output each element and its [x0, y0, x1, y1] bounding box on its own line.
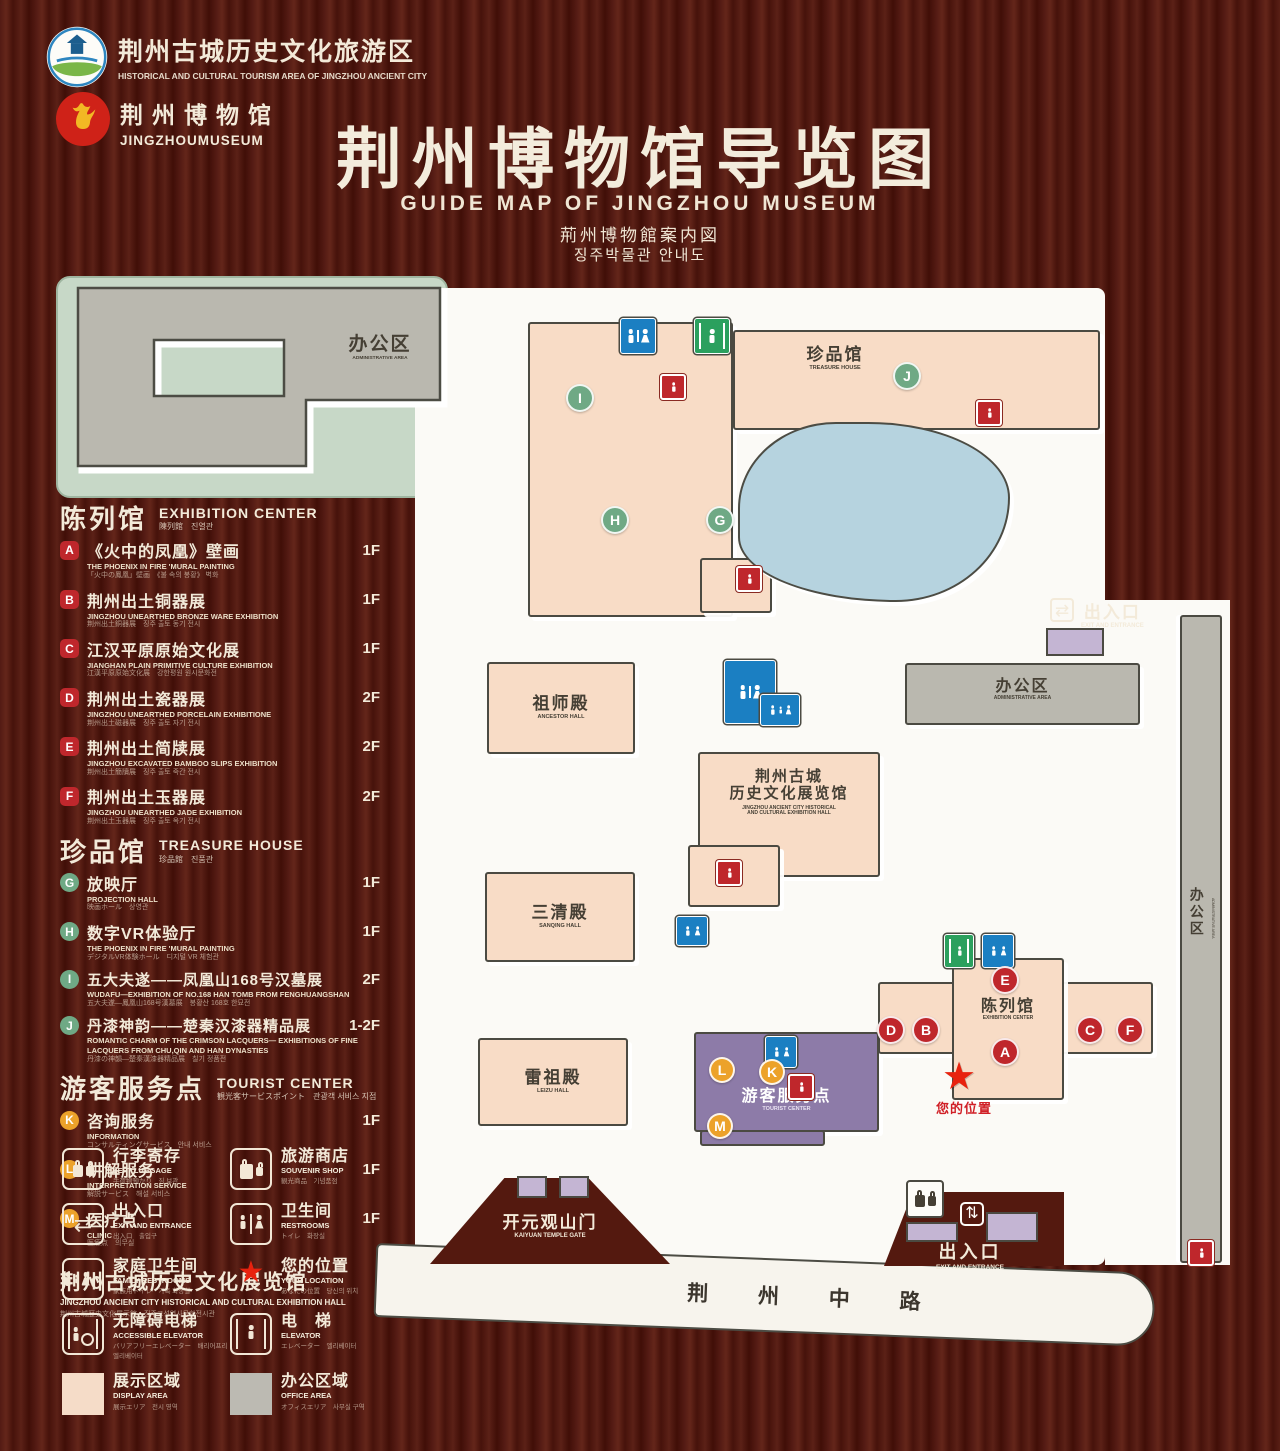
legend-item-k: K 咨询服务1F INFORMATIONコンサルティングサービス 안내 서비스	[60, 1108, 380, 1150]
exit-entrance-icon: ⇄	[1050, 598, 1074, 622]
legend-section-exhibition-header: 陈列馆 EXHIBITION CENTER 陳列館 진열관	[60, 506, 380, 532]
page-subtitle-ko: 징주박물관 안내도	[290, 244, 990, 265]
exhibition-center-label: 陈列馆 EXHIBITION CENTER	[952, 998, 1064, 1022]
north-gate-structure	[1046, 628, 1104, 656]
marker-g: G	[60, 873, 79, 892]
road-label: 荆 州 中 路	[687, 1277, 943, 1317]
facility-elevator: 电 梯 ELEVATOR エレベーター 엘리베이터	[230, 1313, 398, 1360]
marker-e: E	[60, 737, 79, 756]
marker-k: K	[60, 1111, 79, 1130]
facility-left-luggage: 行李寄存 LEFT LUGGAGE 手荷物預かり 짐 보관	[62, 1148, 230, 1190]
family-restroom-icon	[760, 694, 800, 726]
kaiyuan-gate-post	[559, 1176, 589, 1198]
sanqing-hall-label: 三清殿 SANQING HALL	[485, 903, 635, 929]
legend-item-c: C 江汉平原原始文化展1F JIANGHAN PLAIN PRIMITIVE C…	[60, 637, 380, 679]
marker-b: B	[60, 590, 79, 609]
facility-display-area: 展示区域 DISPLAY AREA 展示エリア 전시 영역	[62, 1373, 230, 1415]
exit-entrance-icon: ⇄	[62, 1203, 104, 1245]
map-marker-d: D	[877, 1016, 905, 1044]
north-entrance: ⇄ 出入口 EXIT AND ENTRANCE	[1050, 598, 1144, 629]
museum-guide-map-poster: 荆州古城历史文化旅游区 HISTORICAL AND CULTURAL TOUR…	[0, 0, 1280, 1451]
legend-section-tourist-header: 游客服务点 TOURIST CENTER 観光客サービスポイント 관광객 서비스…	[60, 1076, 380, 1102]
restroom-icon	[620, 318, 656, 354]
legend-item-e: E 荆州出土简牍展2F JINGZHOU EXCAVATED BAMBOO SL…	[60, 735, 380, 777]
facility-your-location: ★ 您的位置 YOUR LOCATION あなたの位置 당신의 위치	[230, 1258, 398, 1300]
facility-exit-entrance: ⇄ 出入口 EXIT AND ENTRANCE 出入口 출입구	[62, 1203, 230, 1245]
map-marker-h: H	[601, 506, 629, 534]
museum-logo	[56, 92, 110, 146]
kaiyuan-gate-post	[517, 1176, 547, 1198]
accessible-elevator-icon	[788, 1074, 814, 1100]
page-title: 荆州博物馆导览图	[290, 106, 990, 202]
accessible-elevator-icon	[660, 374, 686, 400]
map-marker-c: C	[1076, 1016, 1104, 1044]
legend-item-f: F 荆州出土玉器展2F JINGZHOU UNEARTHED JADE EXHI…	[60, 784, 380, 826]
marker-a: A	[60, 541, 79, 560]
facility-souvenir-shop: 旅游商店 SOUVENIR SHOP 観光商品 기념품점	[230, 1148, 398, 1190]
accessible-elevator-icon	[1188, 1240, 1214, 1266]
map-marker-b: B	[912, 1016, 940, 1044]
display-area-swatch	[62, 1373, 104, 1415]
souvenir-shop-icon	[230, 1148, 272, 1190]
ancestor-hall-label: 祖师殿 ANCESTOR HALL	[487, 694, 635, 720]
map-marker-j: J	[893, 362, 921, 390]
facility-legend: 行李寄存 LEFT LUGGAGE 手荷物預かり 짐 보관 旅游商店 SOUVE…	[62, 1148, 398, 1415]
marker-i: I	[60, 970, 79, 989]
admin-strip-east: 办公区 ADMINISTRATIVE AREA	[1180, 615, 1222, 1263]
your-location-star-icon: ★	[230, 1258, 272, 1288]
admin-strip-label-en: ADMINISTRATIVE AREA	[1211, 898, 1215, 938]
page-subtitle-ja: 荊州博物館案内図	[290, 221, 990, 246]
restroom-icon	[982, 934, 1014, 968]
north-entrance-label-en: EXIT AND ENTRANCE	[1081, 623, 1144, 629]
accessible-elevator-icon	[736, 566, 762, 592]
legend-item-d: D 荆州出土瓷器展2F JINGZHOU UNEARTHED PORCELAIN…	[60, 686, 380, 728]
facility-office-area: 办公区域 OFFICE AREA オフィスエリア 사무실 구역	[230, 1373, 398, 1415]
map-marker-e: E	[991, 966, 1019, 994]
museum-logo-title: 荆州博物馆	[120, 96, 280, 130]
accessible-elevator-icon	[62, 1313, 104, 1355]
tourist-center-label: 游客服务点 TOURIST CENTER	[694, 1088, 879, 1113]
tourism-area-subtitle: HISTORICAL AND CULTURAL TOURISM AREA OF …	[118, 71, 427, 81]
facility-accessible-elevator: 无障碍电梯 ACCESSIBLE ELEVATOR バリアフリーエレベーター 배…	[62, 1313, 230, 1360]
exit-entrance-icon: ⇅	[960, 1202, 984, 1226]
admin-right-label: 办公区 ADMINISTRATIVE AREA	[905, 678, 1140, 702]
marker-j: J	[60, 1016, 79, 1035]
map-marker-g: G	[706, 506, 734, 534]
accessible-elevator-icon	[716, 860, 742, 886]
ancient-city-exhibition-hall-label: 荆州古城 历史文化展览馆 JINGZHOU ANCIENT CITY HISTO…	[698, 768, 880, 817]
tourism-area-title: 荆州古城历史文化旅游区	[118, 32, 427, 68]
legend-item-a: A 《火中的凤凰》壁画1F THE PHOENIX IN FIRE 'MURAL…	[60, 538, 380, 580]
facility-family-restrooms: 家庭卫生间 FAMILY RESTROOMS 家族用トイレ 가족 화장실	[62, 1258, 230, 1300]
marker-c: C	[60, 639, 79, 658]
marker-f: F	[60, 787, 79, 806]
elevator-icon	[944, 934, 974, 968]
marker-d: D	[60, 688, 79, 707]
legend-section-treasure-header: 珍品馆 TREASURE HOUSE 珍品館 진품관	[60, 838, 380, 864]
elevator-icon	[230, 1313, 272, 1355]
tourism-area-emblem-icon	[46, 26, 108, 88]
south-entrance-label: 出入口 EXIT AND ENTRANCE	[895, 1238, 1045, 1271]
museum-logo-subtitle: JINGZHOUMUSEUM	[120, 133, 280, 148]
page-subtitle-en: GUIDE MAP OF JINGZHOU MUSEUM	[290, 192, 990, 216]
left-luggage-icon	[906, 1180, 944, 1218]
admin-building-top-left	[66, 280, 451, 480]
legend-item-h: H 数字VR体验厅1F THE PHOENIX IN FIRE 'MURAL P…	[60, 920, 380, 962]
map-marker-i: I	[566, 384, 594, 412]
leizu-hall-label: 雷祖殿 LEIZU HALL	[478, 1068, 628, 1094]
map-marker-l: L	[709, 1057, 735, 1083]
phoenix-icon	[63, 99, 103, 139]
your-location-star-icon: ★	[942, 1058, 976, 1096]
office-area-swatch	[230, 1373, 272, 1415]
kaiyuan-gate-label: 开元观山门 KAIYUAN TEMPLE GATE	[450, 1208, 650, 1239]
map-marker-m: M	[707, 1113, 733, 1139]
admin-top-left-label: 办公区 ADMINISTRATIVE AREA	[315, 334, 445, 361]
treasure-house-label: 珍品馆 TREASURE HOUSE	[760, 345, 910, 371]
map-marker-k: K	[759, 1059, 785, 1085]
restroom-icon	[230, 1203, 272, 1245]
elevator-icon	[694, 318, 730, 354]
treasure-lake	[738, 422, 1010, 602]
restroom-icon	[676, 916, 708, 946]
north-entrance-label: 出入口	[1081, 598, 1144, 623]
facility-restrooms: 卫生间 RESTROOMS トイレ 화장실	[230, 1203, 398, 1245]
legend-item-g: G 放映厅1F PROJECTION HALL映画ホール 상영관	[60, 871, 380, 913]
garden-path	[1062, 795, 1120, 835]
map-marker-f: F	[1116, 1016, 1144, 1044]
admin-strip-label: 办公区	[1187, 887, 1207, 938]
family-restroom-icon	[62, 1258, 104, 1300]
marker-h: H	[60, 922, 79, 941]
legend-item-b: B 荆州出土铜器展1F JINGZHOU UNEARTHED BRONZE WA…	[60, 588, 380, 630]
map-marker-a: A	[991, 1038, 1019, 1066]
legend-item-i: I 五大夫遂——凤凰山168号汉墓展2F WUDAFU—EXHIBITION O…	[60, 969, 380, 1008]
legend-item-j: J 丹漆神韵——楚秦汉漆器精品展1-2F ROMANTIC CHARM OF T…	[60, 1015, 380, 1064]
accessible-elevator-icon	[976, 400, 1002, 426]
left-luggage-icon	[62, 1148, 104, 1190]
your-location-label: 您的位置	[918, 1098, 1010, 1117]
tourism-area-logo	[46, 26, 108, 88]
